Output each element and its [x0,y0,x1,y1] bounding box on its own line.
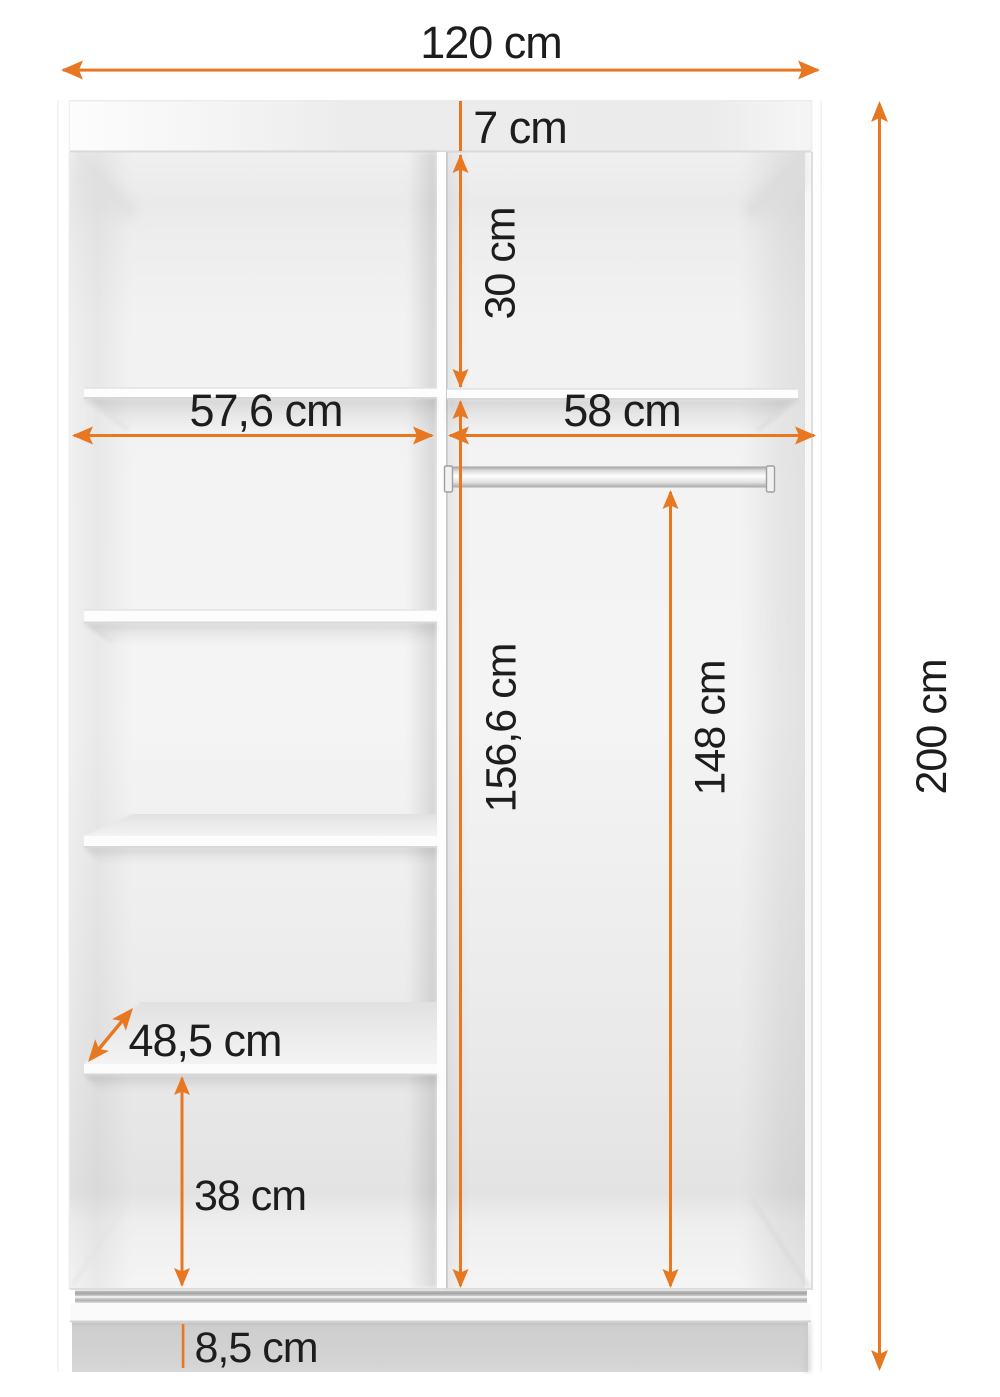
svg-text:156,6 cm: 156,6 cm [478,644,526,813]
svg-text:30 cm: 30 cm [477,207,525,319]
svg-text:48,5 cm: 48,5 cm [128,1015,281,1066]
svg-text:7 cm: 7 cm [473,102,567,153]
svg-text:148 cm: 148 cm [687,660,735,795]
svg-text:57,6 cm: 57,6 cm [189,385,342,436]
svg-text:200 cm: 200 cm [908,659,956,794]
svg-text:38 cm: 38 cm [194,1172,306,1220]
svg-text:58 cm: 58 cm [563,385,681,436]
svg-text:8,5 cm: 8,5 cm [194,1324,317,1372]
svg-text:120 cm: 120 cm [420,17,562,68]
